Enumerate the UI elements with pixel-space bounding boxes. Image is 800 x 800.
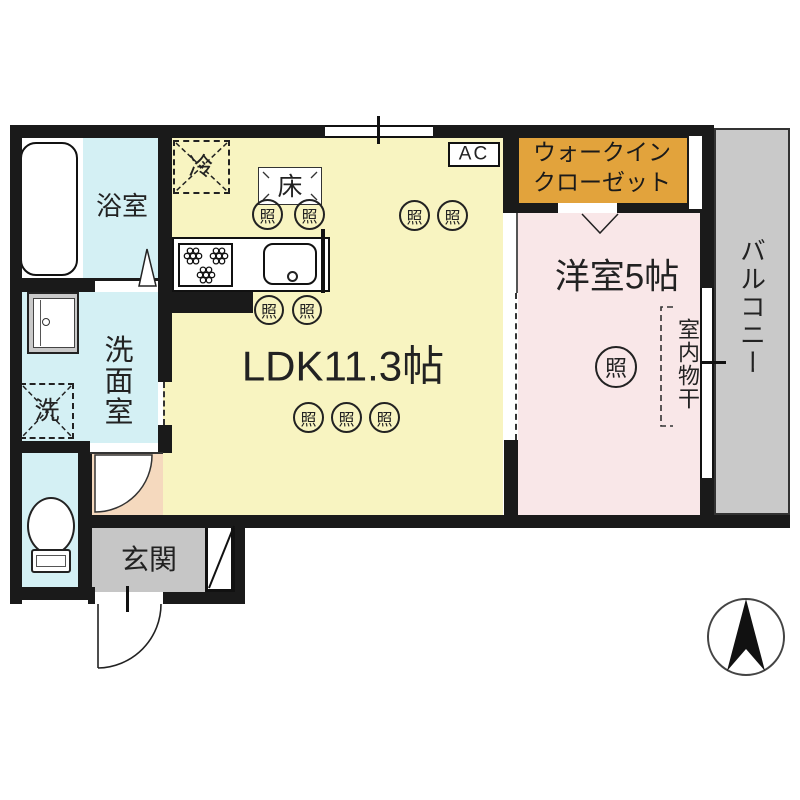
stove xyxy=(178,243,233,287)
kitchen-window-tick xyxy=(377,116,380,144)
ldk-label: LDK11.3帖 xyxy=(242,340,444,395)
wall-toilet-right xyxy=(78,453,92,600)
washbasin-drain xyxy=(42,318,50,326)
washroom-label: 洗面室 xyxy=(95,335,137,428)
hall-top-line xyxy=(90,452,163,454)
western-room-label: 洋室5帖 xyxy=(555,254,679,300)
light-symbol: 照 xyxy=(331,402,362,433)
bathroom-label: 浴室 xyxy=(96,190,148,224)
light-symbol: 照 xyxy=(294,199,325,230)
washing-machine-label: 洗 xyxy=(34,395,59,428)
closet-side-gap xyxy=(689,136,702,209)
entrance-label: 玄関 xyxy=(121,542,177,578)
shoe-cabinet xyxy=(205,521,239,592)
light-symbol: 照 xyxy=(399,200,430,231)
partition-line xyxy=(516,213,518,293)
entrance-door-swing xyxy=(98,604,161,668)
bathtub xyxy=(20,142,78,276)
light-symbol: 照 xyxy=(254,295,284,325)
wall-bottom xyxy=(88,515,790,528)
wall-bathroom-right xyxy=(158,125,172,292)
closet-label: ウォークイン クローゼット xyxy=(533,138,671,198)
partition-sliding-door xyxy=(515,293,520,440)
wall-toilet-bottom xyxy=(10,587,95,600)
bathroom-doorway xyxy=(95,281,158,292)
compass-icon xyxy=(708,599,784,675)
wall-partition-lower xyxy=(504,440,518,515)
light-symbol: 照 xyxy=(369,402,400,433)
balcony-window-tick xyxy=(700,361,726,364)
wall-kitchen-half xyxy=(158,292,253,313)
floor-hatch-label: 床 xyxy=(277,171,302,204)
toilet-tank-inner xyxy=(36,555,66,567)
hall-floor xyxy=(92,453,163,515)
wall-left xyxy=(10,125,22,604)
wall-entrance-right xyxy=(235,515,245,604)
entrance-door-tick xyxy=(126,586,129,612)
indoor-laundry-label: 室内物干 xyxy=(671,318,703,410)
light-symbol: 照 xyxy=(437,200,468,231)
counter-edge xyxy=(321,229,325,293)
ac-label: AC xyxy=(459,143,489,168)
light-symbol: 照 xyxy=(595,346,637,388)
entrance-doorway xyxy=(95,592,163,604)
ldk-floor xyxy=(163,138,503,515)
light-symbol: 照 xyxy=(293,402,324,433)
washroom-doorway-dashed xyxy=(163,382,168,425)
light-symbol: 照 xyxy=(292,295,322,325)
faucet xyxy=(287,271,298,282)
washbasin-divider xyxy=(40,300,41,346)
light-symbol: 照 xyxy=(252,199,283,230)
balcony-label: バルコニー xyxy=(734,237,771,377)
toilet-bowl xyxy=(27,497,75,555)
refrigerator-label: 冷 xyxy=(188,151,213,184)
floor-plan: 照 照 照 照 照 照 照 照 照 照 浴室 洗面室 洗 冷 床 AC LDK1… xyxy=(0,0,800,800)
closet-doorway xyxy=(558,203,617,213)
wall-washroom-right-lower xyxy=(158,425,172,453)
wall-washroom-bottom xyxy=(10,441,90,453)
